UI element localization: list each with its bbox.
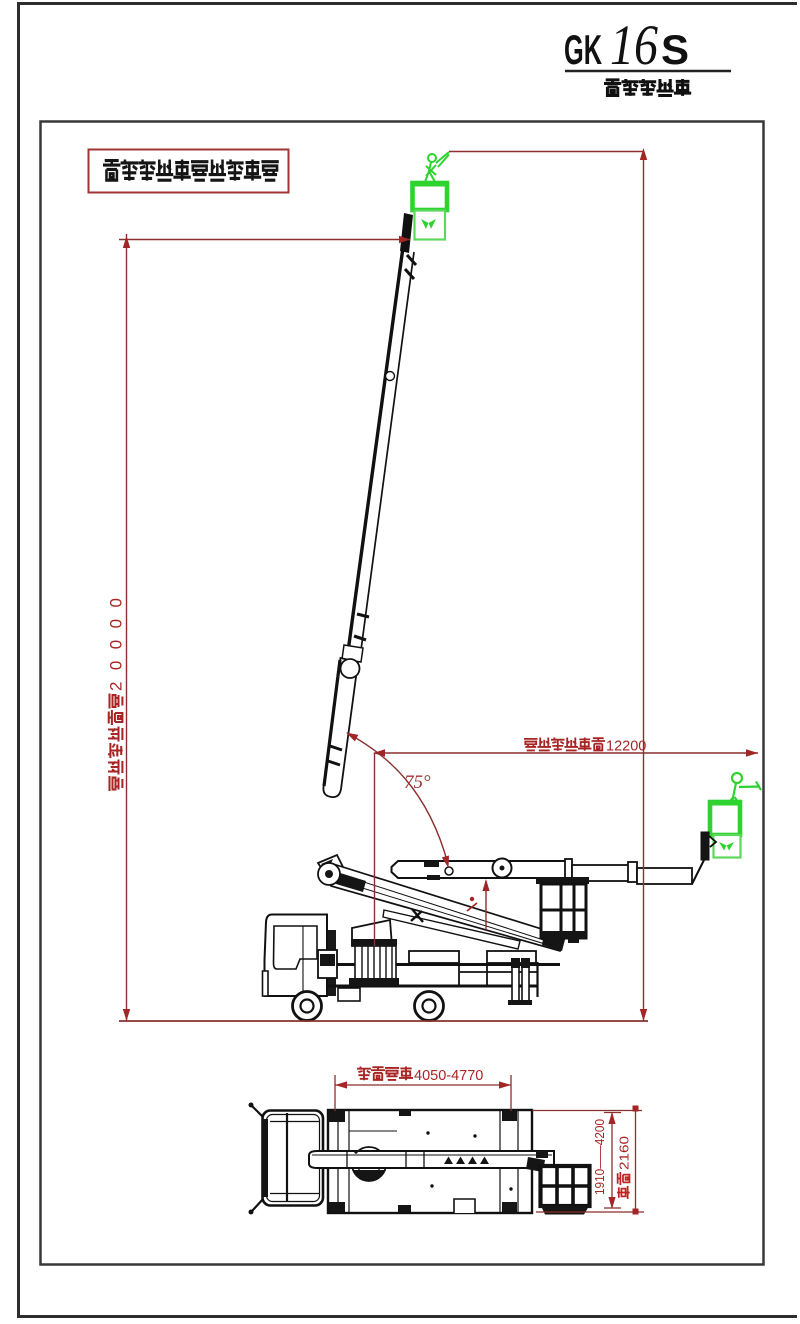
- svg-text:S: S: [661, 26, 689, 73]
- svg-text:12200: 12200: [606, 739, 646, 755]
- svg-text:16: 16: [610, 14, 658, 77]
- svg-text:1910——4200: 1910——4200: [593, 1119, 607, 1195]
- svg-text:75°: 75°: [404, 772, 431, 793]
- svg-text:4050-4770: 4050-4770: [414, 1068, 483, 1084]
- svg-text:GK: GK: [564, 26, 602, 73]
- svg-text:2160: 2160: [618, 1136, 632, 1170]
